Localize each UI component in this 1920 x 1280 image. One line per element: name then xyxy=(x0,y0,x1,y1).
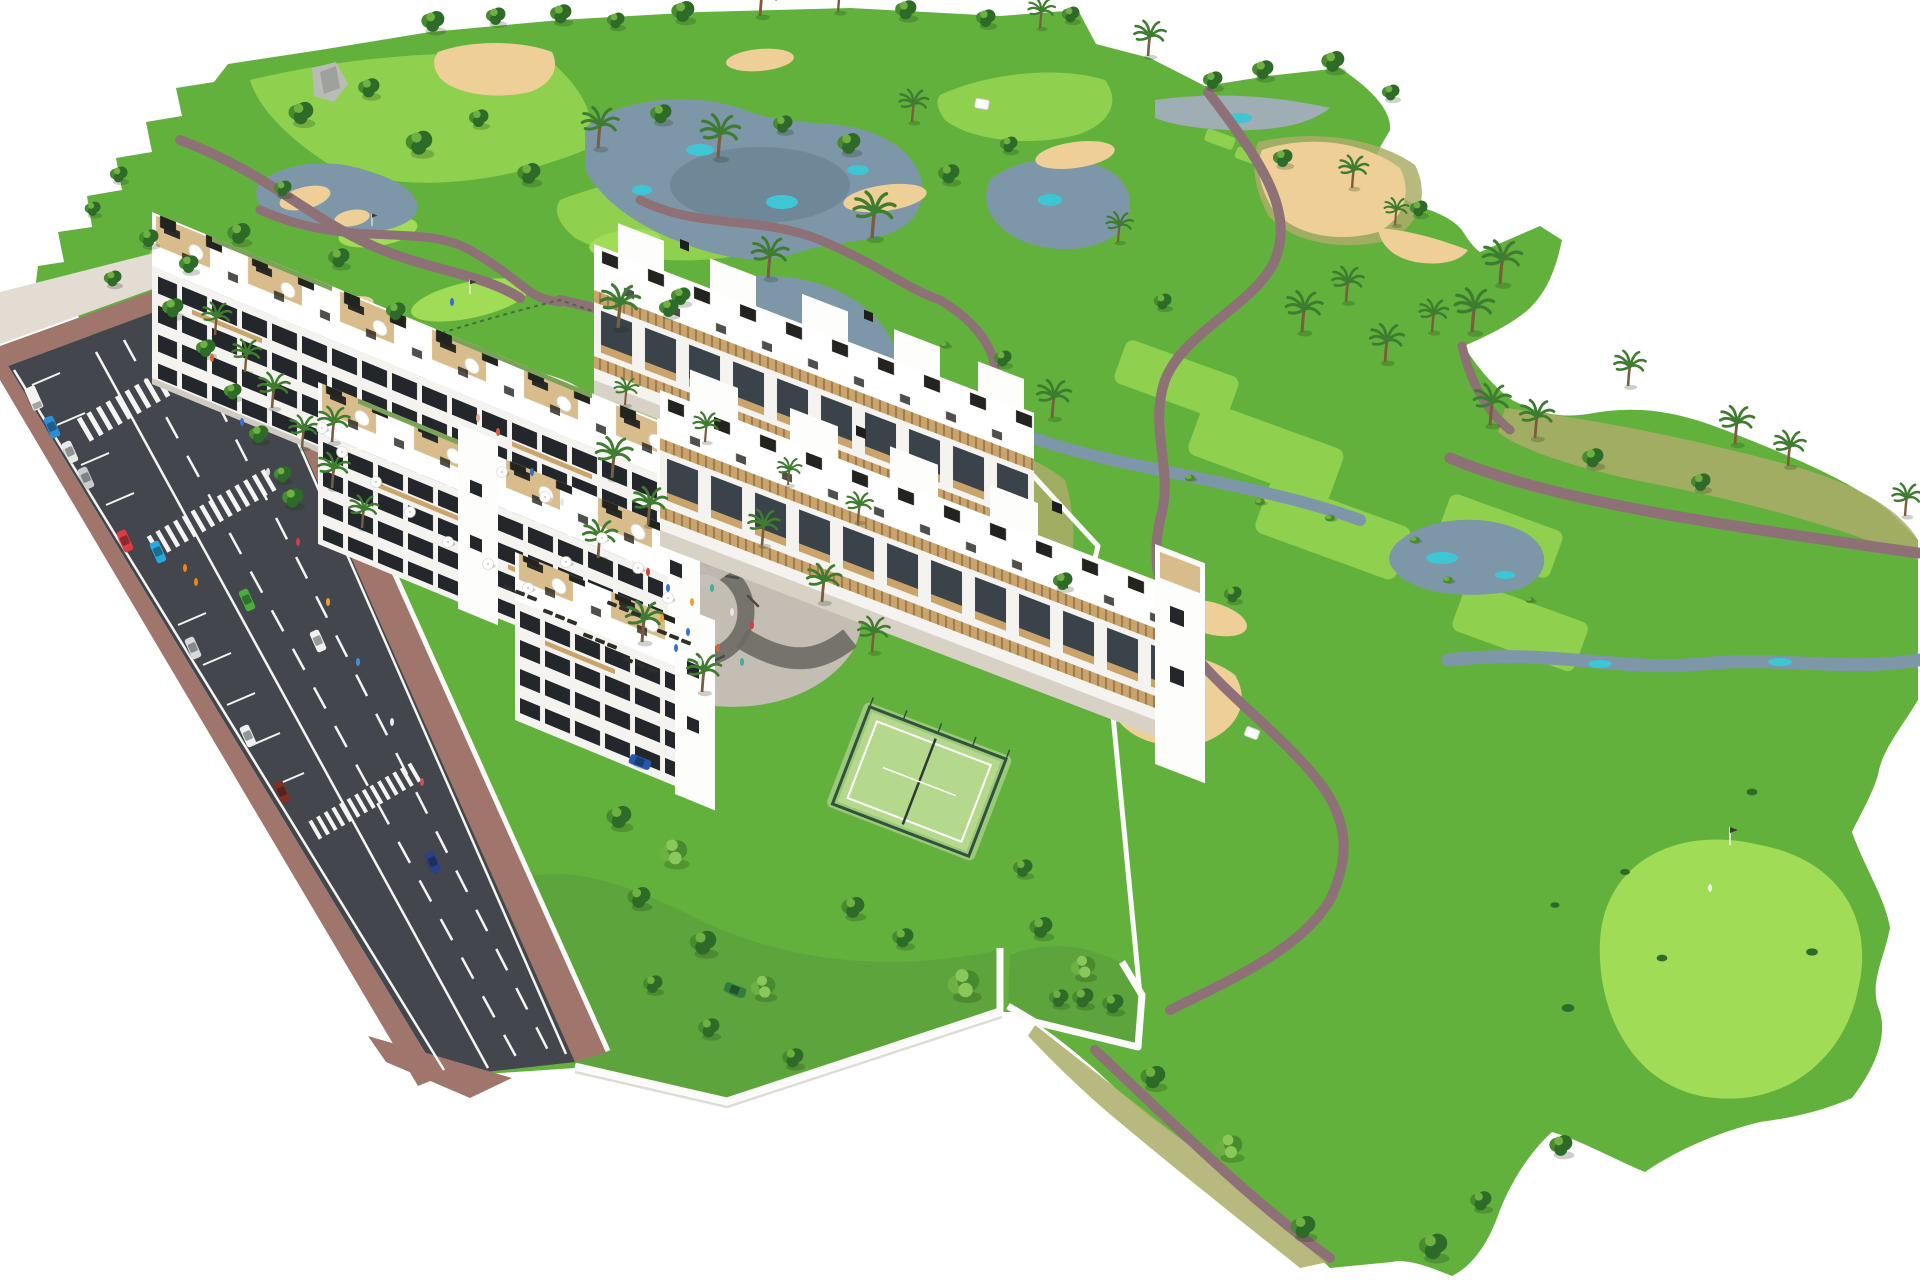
pedestrian xyxy=(296,538,300,546)
bush xyxy=(1551,902,1560,908)
playground-figure xyxy=(646,568,650,576)
golf-cart xyxy=(974,98,990,110)
shallow xyxy=(632,185,652,195)
playground-figure xyxy=(660,614,664,622)
playground-figure xyxy=(666,584,670,592)
playground-figure xyxy=(716,644,720,652)
tree xyxy=(110,167,129,186)
pedestrian xyxy=(266,468,270,476)
pedestrian xyxy=(356,658,360,666)
playground-figure xyxy=(690,598,694,606)
swimmer xyxy=(476,414,480,422)
playground-figure xyxy=(686,628,690,636)
swimmer xyxy=(496,428,500,436)
pedestrian xyxy=(390,718,394,726)
shallow xyxy=(1038,194,1062,206)
shallow xyxy=(847,165,869,175)
pedestrian xyxy=(240,418,244,426)
playground-figure xyxy=(674,644,678,652)
bush xyxy=(1657,955,1668,962)
pool-guest xyxy=(530,468,534,476)
tree xyxy=(1549,1135,1574,1159)
bush xyxy=(1806,948,1818,955)
palm-tree xyxy=(1892,484,1920,520)
bush xyxy=(1620,869,1630,875)
palm-tree xyxy=(1614,351,1645,390)
playground-figure xyxy=(750,621,754,629)
shallow xyxy=(686,144,714,156)
bush xyxy=(1562,1004,1575,1012)
golfer xyxy=(1708,884,1712,892)
playground-figure xyxy=(740,658,744,666)
tree xyxy=(85,202,102,219)
stair-tower xyxy=(458,424,498,625)
pedestrian xyxy=(210,354,214,362)
tree xyxy=(421,11,446,35)
playground-figure xyxy=(698,658,702,666)
tree xyxy=(1382,85,1401,104)
shallow xyxy=(766,195,798,209)
playground-figure xyxy=(710,584,714,592)
shallow xyxy=(1588,660,1612,668)
road-worker xyxy=(194,578,198,586)
palm-tree xyxy=(1134,21,1165,60)
tree xyxy=(486,7,507,28)
pool-guest xyxy=(560,498,564,506)
lake-shade xyxy=(670,147,850,223)
bush xyxy=(1747,789,1758,796)
pedestrian xyxy=(326,598,330,606)
stair-tower xyxy=(675,604,715,810)
playground-figure xyxy=(730,608,734,616)
aerial-render-stage: Aerial 3D rendering of a white apartment… xyxy=(0,0,1920,1280)
shallow xyxy=(1426,552,1458,564)
road-worker xyxy=(183,564,187,572)
golfer xyxy=(450,298,454,306)
aerial-render xyxy=(0,0,1920,1280)
shallow xyxy=(1495,571,1515,579)
pedestrian xyxy=(420,778,424,786)
shallow xyxy=(1768,658,1792,666)
